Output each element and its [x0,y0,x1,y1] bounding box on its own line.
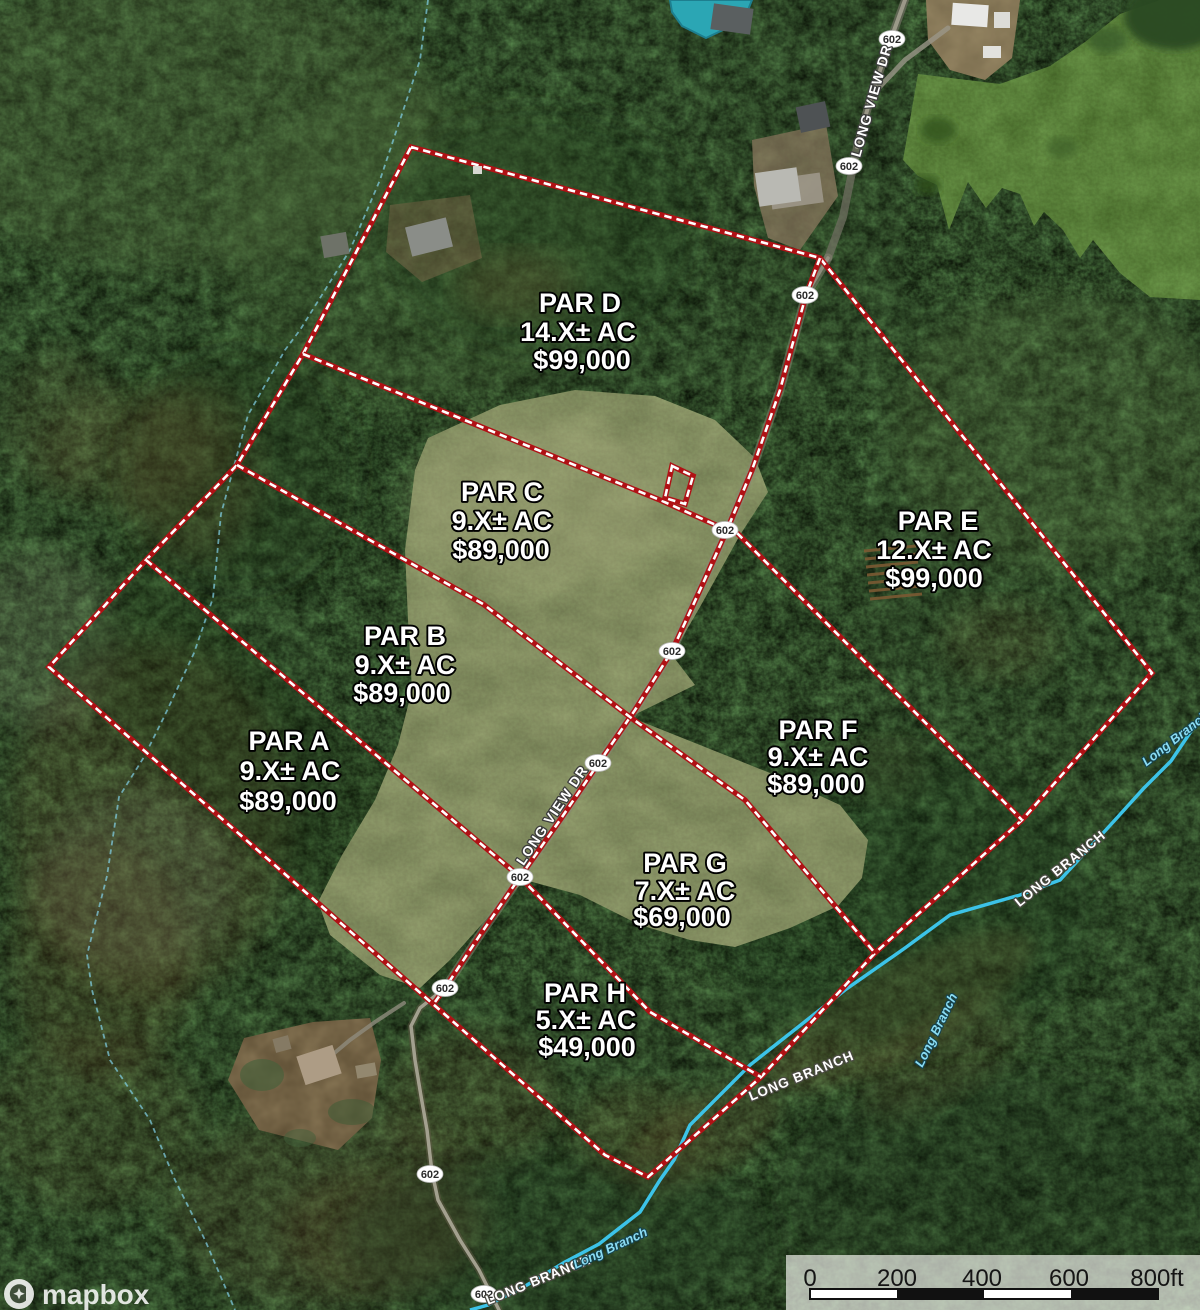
svg-text:602: 602 [511,872,529,884]
svg-text:9.X± AC: 9.X± AC [768,742,869,772]
svg-text:$89,000: $89,000 [353,678,451,708]
svg-text:800ft: 800ft [1130,1265,1184,1292]
svg-text:9.X± AC: 9.X± AC [240,756,341,786]
svg-text:602: 602 [883,34,901,46]
svg-text:602: 602 [663,646,681,658]
svg-text:602: 602 [589,758,607,770]
svg-text:$89,000: $89,000 [452,535,550,565]
svg-text:9.X± AC: 9.X± AC [452,506,553,536]
svg-text:14.X± AC: 14.X± AC [520,317,636,347]
svg-text:400: 400 [962,1265,1002,1292]
svg-text:$99,000: $99,000 [885,563,983,593]
svg-text:0: 0 [803,1265,816,1292]
svg-text:9.X± AC: 9.X± AC [355,650,456,680]
svg-text:602: 602 [796,290,814,302]
svg-text:$89,000: $89,000 [239,786,337,816]
svg-text:12.X± AC: 12.X± AC [876,535,992,565]
svg-text:PAR F: PAR F [779,715,858,745]
svg-text:PAR E: PAR E [898,506,979,536]
svg-text:$49,000: $49,000 [538,1032,636,1062]
svg-text:mapbox: mapbox [42,1279,150,1310]
svg-text:602: 602 [840,161,858,173]
svg-text:$69,000: $69,000 [633,902,731,932]
svg-text:$99,000: $99,000 [533,345,631,375]
svg-text:PAR G: PAR G [643,848,727,878]
svg-text:602: 602 [436,983,454,995]
svg-text:602: 602 [421,1169,439,1181]
svg-text:200: 200 [877,1265,917,1292]
svg-text:$89,000: $89,000 [767,769,865,799]
svg-text:PAR A: PAR A [249,726,330,756]
svg-text:PAR H: PAR H [544,978,626,1008]
svg-text:PAR D: PAR D [539,288,621,318]
svg-text:600: 600 [1049,1265,1089,1292]
svg-text:PAR B: PAR B [364,621,446,651]
svg-text:602: 602 [716,525,734,537]
svg-text:PAR C: PAR C [461,477,543,507]
svg-text:5.X± AC: 5.X± AC [536,1005,637,1035]
